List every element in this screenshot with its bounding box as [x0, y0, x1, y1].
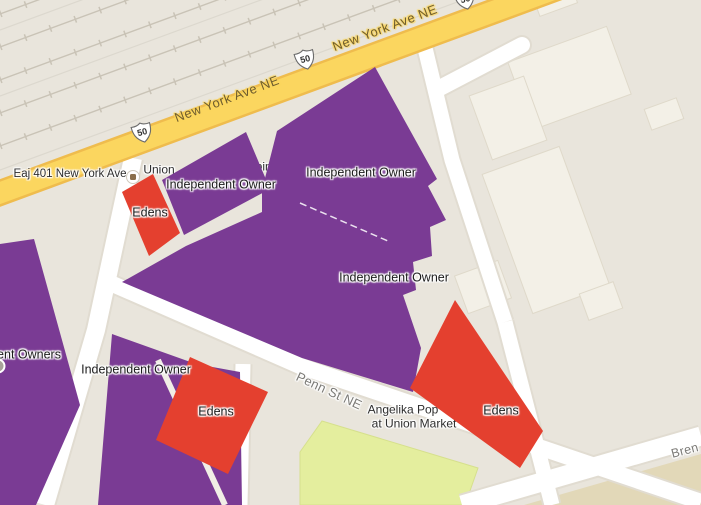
overlay-label-independent-owner: Independent Owner: [81, 363, 191, 376]
overlay-label-independent-owner: Independent Owner: [339, 271, 449, 284]
overlay-label-edens: Edens: [198, 405, 233, 418]
poi-gray-glyph: [0, 361, 4, 372]
overlay-label-edens: Edens: [132, 206, 167, 219]
overlay-label-edens: Edens: [483, 404, 518, 417]
overlay-label-independent-owners-partial: ent Owners: [0, 348, 61, 361]
map-viewport[interactable]: New York Ave NE New York Ave NE 50 50 50…: [0, 0, 701, 505]
overlay-label-independent-owner: Independent Owner: [166, 178, 276, 191]
overlay-label-independent-owner: Independent Owner: [306, 166, 416, 179]
overlay-label-layer: Independent Owner Independent Owner Inde…: [0, 0, 701, 505]
poi-gray-icon-clipped[interactable]: [0, 359, 6, 374]
